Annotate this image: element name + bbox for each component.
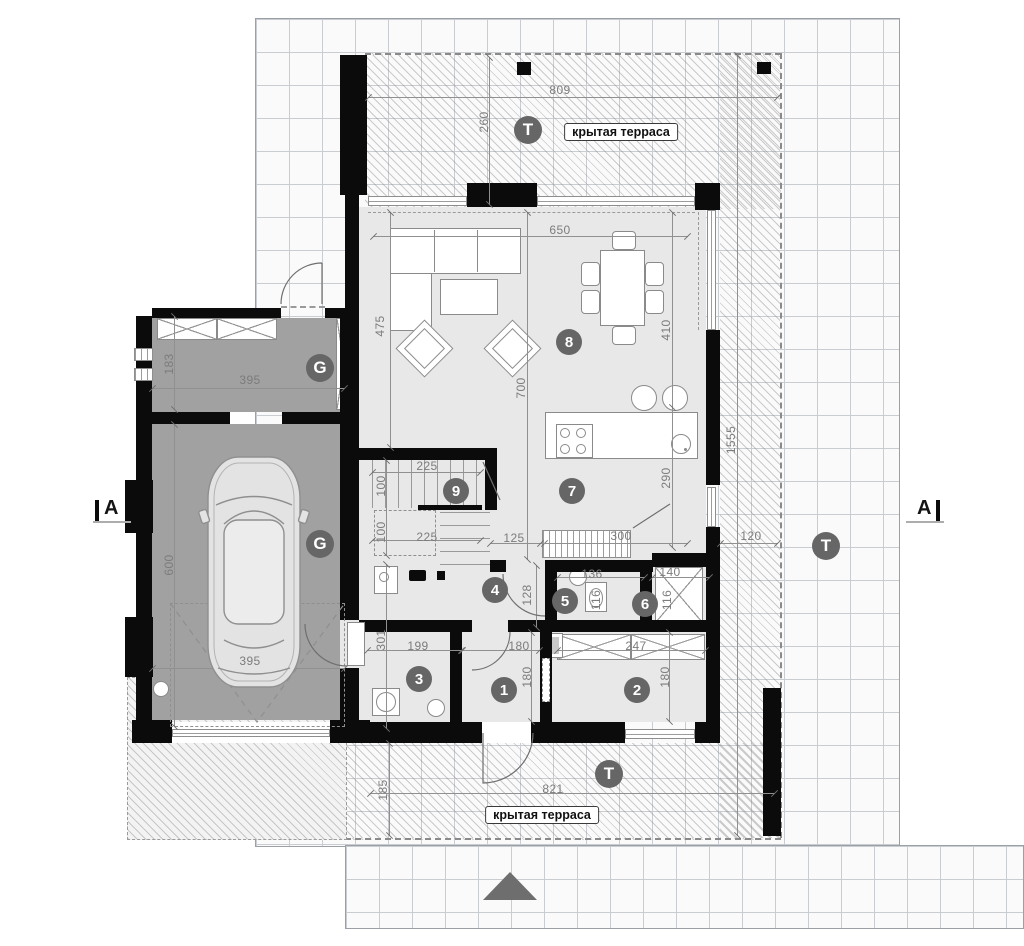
terrace-label-top: крытая терраса [564, 123, 678, 141]
dimension-label: 809 [549, 83, 570, 97]
dimension-label: 395 [239, 373, 260, 387]
room-marker-1: 1 [491, 677, 517, 703]
dimension-label: 183 [162, 353, 176, 374]
dimension-label: 116 [660, 590, 674, 610]
zone-marker-G: G [306, 530, 334, 558]
door-arc-side [281, 263, 322, 304]
dimension-label: 700 [514, 377, 528, 398]
dimension-label: 136 [581, 567, 602, 581]
dimension-label: 199 [407, 639, 428, 653]
zone-marker-T: T [514, 116, 542, 144]
room-marker-2: 2 [624, 677, 650, 703]
door-leaf-stairs [483, 462, 500, 500]
dimension-label: 225 [416, 530, 437, 544]
dimension-label: 600 [162, 554, 176, 575]
zone-marker-T: T [812, 532, 840, 560]
room-marker-5: 5 [552, 588, 578, 614]
door-arc-hall [472, 632, 510, 670]
door-arc-entrance [483, 733, 533, 783]
room-marker-3: 3 [406, 666, 432, 692]
dimension-label: 100 [374, 475, 388, 496]
terrace-label-bottom: крытая терраса [485, 806, 599, 824]
room-marker-8: 8 [556, 329, 582, 355]
dimension-label: 128 [520, 584, 534, 605]
dimension-label: 225 [416, 459, 437, 473]
door-leaf-kitchen [633, 504, 670, 528]
room-marker-4: 4 [482, 577, 508, 603]
dimension-label: 475 [373, 315, 387, 336]
dimension-label: 247 [625, 639, 646, 653]
dimension-label: 185 [376, 779, 390, 800]
dimension-label: 116 [589, 590, 603, 610]
dimension-label: 125 [503, 531, 524, 545]
dimension-label: 300 [610, 529, 631, 543]
overlay-drawing [0, 0, 1024, 946]
dimension-label: 1555 [724, 426, 738, 454]
section-letter-left: A [104, 497, 118, 520]
floor-plan: A A крытая терраса крытая терраса 809260… [0, 0, 1024, 946]
dimension-label: 140 [659, 565, 680, 579]
dimension-label: 180 [658, 666, 672, 687]
dimension-label: 301 [374, 629, 388, 650]
dimension-label: 410 [659, 319, 673, 340]
room-marker-6: 6 [632, 591, 658, 617]
dimension-label: 290 [659, 467, 673, 488]
section-letter-right: A [917, 497, 931, 520]
dimension-label: 180 [508, 639, 529, 653]
room-marker-9: 9 [443, 478, 469, 504]
zone-marker-G: G [306, 354, 334, 382]
door-arc-garage [305, 624, 347, 666]
car-roof [224, 520, 284, 624]
dimension-label: 260 [477, 111, 491, 132]
room-marker-7: 7 [559, 478, 585, 504]
dimension-label: 180 [520, 666, 534, 687]
dimension-label: 650 [549, 223, 570, 237]
car [198, 457, 309, 687]
dimension-label: 120 [740, 529, 761, 543]
dimension-label: 100 [374, 521, 388, 542]
dimension-label: 821 [542, 782, 563, 796]
dimension-label: 395 [239, 654, 260, 668]
zone-marker-T: T [595, 760, 623, 788]
